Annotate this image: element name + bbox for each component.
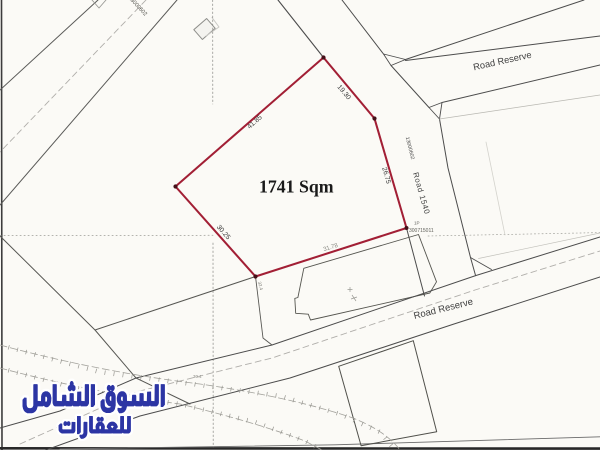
svg-text:300715011: 300715011 — [409, 228, 434, 234]
svg-text:1741 Sqm: 1741 Sqm — [259, 176, 334, 196]
svg-text:1P: 1P — [414, 221, 420, 226]
svg-text:30.4: 30.4 — [193, 374, 202, 379]
